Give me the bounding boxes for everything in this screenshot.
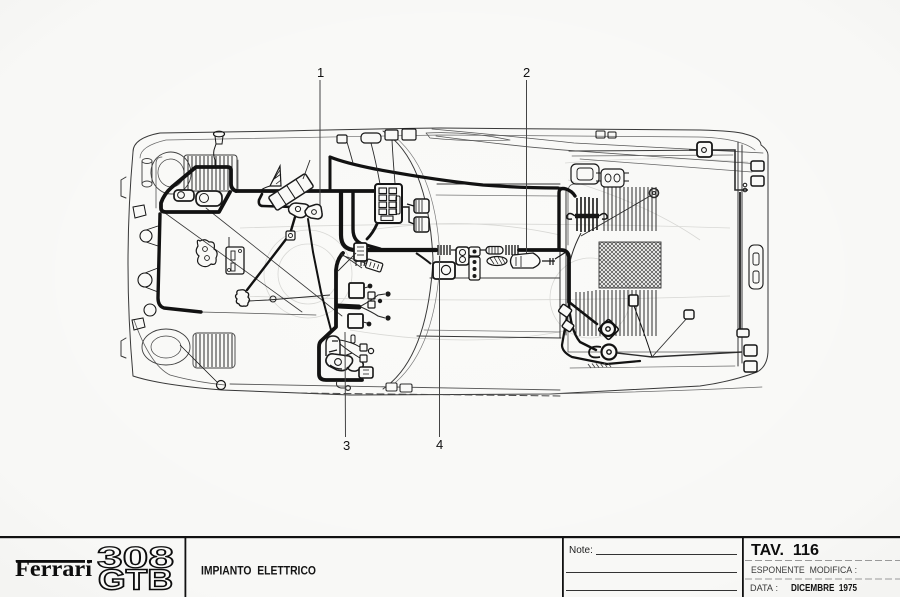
svg-text:ESPONENTE MODIFICA :: ESPONENTE MODIFICA : [751,565,857,576]
svg-text:Ferrari: Ferrari [15,556,93,581]
svg-text:IMPIANTO ELETTRICO: IMPIANTO ELETTRICO [201,566,316,578]
svg-text:GTB: GTB [98,565,173,597]
svg-text:DATA :: DATA : [750,583,778,594]
svg-text:TAV. 116: TAV. 116 [751,542,819,559]
svg-text:Note:: Note: [569,545,593,556]
svg-text:DICEMBRE 1975: DICEMBRE 1975 [791,583,857,594]
